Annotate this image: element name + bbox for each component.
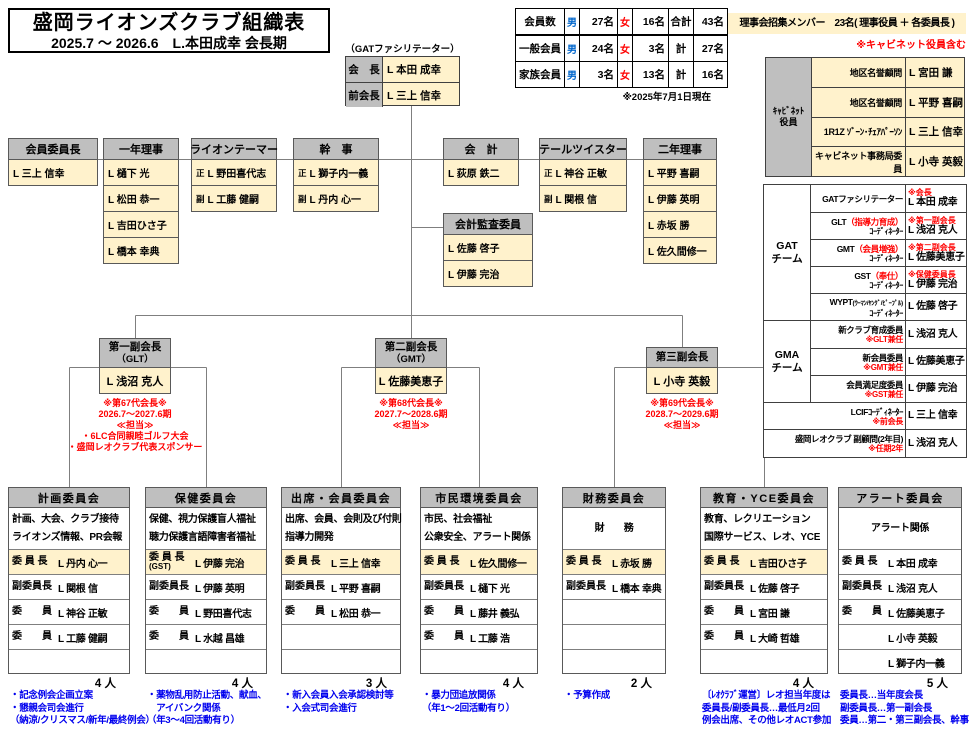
committee-count: 4 人 [145,675,267,691]
leo-role: 盛岡レオクラブ 副顧問(2年目) [795,434,903,444]
male-label: 男 [565,35,580,62]
officer-column-secretary: 幹 事 正L 獅子内一義 副L 丹内 心一 [293,138,379,212]
gat-role-line2: ｺｰﾃﾞｨﾈｰﾀｰ [869,309,903,318]
officer-column-title: テールツイスター [539,138,627,160]
cabinet-name: L 小寺 英毅 [906,147,964,176]
committee-notes: ・記念例会企画立案 ・懇親会司会進行 （納涼/クリスマス/新年/最終例会） [10,690,155,728]
male-count: 3名 [580,62,618,88]
president-label: 会 長 [346,57,383,82]
gat-team-section: GAT チーム GATファシリテーター ※会長 L 本田 成幸 GLT [764,185,966,321]
committee-title: アラート委員会 [839,488,961,508]
gma-name: L 佐藤美恵子 [908,356,966,368]
committee-desc: 教育、レクリエーション 国際サービス、レオ、YCE [701,508,827,550]
total-label: 合計 [669,9,694,36]
gat-name-cell: ※会長 L 本田 成幸 [906,185,966,212]
gat-role-cell: GMT（会員増強） ｺｰﾃﾞｨﾈｰﾀｰ [811,240,906,266]
committee-row [563,650,665,675]
vp-note-line: ※第69代会長※ [597,398,767,409]
total-count: 43名 [694,9,728,36]
officer-row: L 吉田ひさ子 [103,212,179,238]
cabinet-row: 1R1Z ｿﾞｰﾝ･ﾁｪｱﾊﾟｰｿﾝ L 三上 信幸 [812,117,964,147]
female-count: 13名 [633,62,669,88]
third-vp-header: 第三副会長 [646,347,718,368]
officer-row: L 松田 恭一 [103,186,179,212]
president-name: L 本田 成幸 [383,57,459,82]
cabinet-role: キャビネット事務局委員 [812,147,906,176]
vp-note-line: 2027.7～2028.6期 [326,409,496,420]
total-label: 計 [669,35,694,62]
committee-count: 5 人 [838,675,962,691]
gma-name: L 浅沼 克人 [908,329,966,341]
gat-name-cell: ※第一副会長 L 浅沼 克人 [906,213,966,239]
officer-row: L 三上 信幸 [8,160,98,186]
officer-name: L 平野 喜嗣 [648,165,699,180]
female-label: 女 [618,62,633,88]
officer-column-title: 幹 事 [293,138,379,160]
vp-note-line: 2026.7～2027.6期 [50,409,220,420]
vp-note-line: ≪担当≫ [597,420,767,431]
officer-name: L 伊藤 完治 [448,266,499,281]
officer-rank: 正 [544,167,553,179]
committee-row [563,600,665,625]
officer-name: L 樋下 光 [108,165,149,180]
gma-row: 新クラブ育成委員 ※GLT兼任 L 浅沼 克人 [811,321,966,348]
cabinet-label-line1: ｷｬﾋﾞﾈｯﾄ [773,106,805,117]
officer-name: L 荻原 鉄二 [448,165,499,180]
vp-name: L 小寺 英毅 [646,368,718,394]
committee-notes: ・薬物乱用防止活動、献血、 アイバンク関係 （年3～4回活動有り） [147,690,267,728]
vp-title: 第二副会長 [376,340,446,354]
gat-role-line2: ｺｰﾃﾞｨﾈｰﾀｰ [869,227,903,236]
officer-row: 副L 丹内 心一 [293,186,379,212]
second-vp-box: 第二副会長 （GMT） L 佐藤美恵子 [375,338,447,394]
lcif-row: LCIFｺｰﾃﾞｨﾈｰﾀｰ ※前会長 L 三上 信幸 [764,403,966,430]
gat-role-line2: ｺｰﾃﾞｨﾈｰﾀｰ [869,254,903,263]
committee-row: 委 員L 水越 昌雄 [146,625,266,650]
cabinet-row: キャビネット事務局委員 L 小寺 英毅 [812,146,964,176]
regular-members-row: 一般会員 男 24名 女 3名 計 27名 [516,35,728,62]
committee-chair-row: 委 員 長L 丹内 心一 [9,550,129,575]
officer-row: L 橋本 幸典 [103,238,179,264]
cabinet-rows: 地区名誉顧問 L 宮田 謙 地区名誉顧問 L 平野 喜嗣 1R1Z ｿﾞｰﾝ･ﾁ… [812,58,964,176]
first-vp-box: 第一副会長 （GLT） L 浅沼 克人 [99,338,171,394]
family-members-label: 家族会員 [516,62,565,88]
cabinet-name: L 宮田 謙 [906,58,964,87]
committee-row: 委 員L 宮田 謙 [701,600,827,625]
committee-desc: 保健、視力保護盲人福祉 聴力保護言語障害者福祉 [146,508,266,550]
officer-column-treasurer: 会 計 L 荻原 鉄二 [443,138,519,186]
gma-team-section: GMA チーム 新クラブ育成委員 ※GLT兼任 L 浅沼 克人 新会員委員 ※G… [764,321,966,403]
committee-desc: 財 務 [563,508,665,550]
first-vp-header: 第一副会長 （GLT） [99,338,171,368]
committee-planning: 計画委員会 計画、大会、クラブ接待 ライオンズ情報、PR会報 委 員 長L 丹内… [8,487,130,674]
officer-name: L 赤坂 勝 [648,217,689,232]
first-vp-notes: ※第67代会長※ 2026.7～2027.6期 ≪担当≫ ・6LC合同親睦ゴルフ… [50,398,220,453]
president-box: 会 長 L 本田 成幸 前会長 L 三上 信幸 [345,56,460,106]
gma-name-cell: L 佐藤美恵子 [906,349,966,375]
officer-row: 正L 神谷 正敏 [539,160,627,186]
committee-count: 4 人 [420,675,538,691]
gma-role-cell: 会員満足度委員 ※GST兼任 [811,376,906,402]
gat-role: GST（奉仕） [854,271,903,281]
member-count-label: 会員数 [516,9,565,36]
officer-name: L 吉田ひさ子 [108,217,167,232]
officer-row: L 荻原 鉄二 [443,160,519,186]
gma-name-cell: L 浅沼 克人 [906,321,966,348]
leo-name: L 浅沼 克人 [908,438,966,450]
past-president-name: L 三上 信幸 [383,83,459,107]
gma-row: 新会員委員 ※GMT兼任 L 佐藤美恵子 [811,348,966,375]
officer-column-tail-twister: テールツイスター 正L 神谷 正敏 副L 関根 信 [539,138,627,212]
committee-row: 副委員長L 伊藤 英明 [146,575,266,600]
officer-name: L 松田 恭一 [108,191,159,206]
second-vp-notes: ※第68代会長※ 2027.7～2028.6期 ≪担当≫ [326,398,496,431]
vp-subtitle: （GMT） [376,354,446,366]
second-vp-header: 第二副会長 （GMT） [375,338,447,368]
lcif-name: L 三上 信幸 [908,410,966,422]
gat-name: L 佐藤美恵子 [908,252,966,264]
gma-role-cell: 新クラブ育成委員 ※GLT兼任 [811,321,906,348]
gat-role-cell: WYPT(ｳｰﾏﾝ/ﾔﾝｸﾞ/ﾋﾟｰﾌﾟﾙ) ｺｰﾃﾞｨﾈｰﾀｰ [811,294,906,320]
gat-role: GMT（会員増強） [837,244,903,254]
board-members-banner: 理事会招集メンバー 23名( 理事役員 ＋ 各委員長 ) [728,13,966,34]
cabinet-label-line2: 役員 [779,117,797,128]
committee-finance: 財務委員会 財 務 委 員 長L 赤坂 勝 副委員長L 橋本 幸典 [562,487,666,674]
page-title: 盛岡ライオンズクラブ組織表 [10,11,328,35]
gat-row: GMT（会員増強） ｺｰﾃﾞｨﾈｰﾀｰ ※第二副会長 L 佐藤美恵子 [811,239,966,266]
vp-note-line: ≪担当≫ [50,420,220,431]
officer-name: L 橋本 幸典 [108,243,159,258]
vp-subtitle: （GLT） [100,354,170,366]
committee-title: 教育・YCE委員会 [701,488,827,508]
gat-role: WYPT(ｳｰﾏﾝ/ﾔﾝｸﾞ/ﾋﾟｰﾌﾟﾙ) [830,297,903,309]
committee-row: 副委員長L 佐藤 啓子 [701,575,827,600]
committee-title: 出席・会員委員会 [282,488,400,508]
cabinet-role: 1R1Z ｿﾞｰﾝ･ﾁｪｱﾊﾟｰｿﾝ [812,118,906,147]
officer-column-title: 一年理事 [103,138,179,160]
committee-chair-row: 委 員 長L 本田 成幸 [839,550,961,575]
total-label: 計 [669,62,694,88]
committee-row [282,650,400,675]
committee-notes: 〔ﾚｵｸﾗﾌﾞ運営〕レオ担当年度は 委員長/副委員長…最低月2回 例会出席、その… [702,690,831,728]
leo-red-note: ※任期2年 [868,444,903,453]
officer-column-title: ライオンテーマー [191,138,277,160]
board-members-note: ※キャビネット役員含む [728,36,966,51]
gat-role-line2: ｺｰﾃﾞｨﾈｰﾀｰ [869,281,903,290]
vp-note-line: 2028.7～2029.6期 [597,409,767,420]
lcif-role: LCIFｺｰﾃﾞｨﾈｰﾀｰ [851,407,903,417]
vp-title: 第三副会長 [647,348,717,367]
male-count: 24名 [580,35,618,62]
gma-team-label: GMA チーム [764,321,811,402]
committee-title: 計画委員会 [9,488,129,508]
vp-name: L 佐藤美恵子 [375,368,447,394]
gma-rows: 新クラブ育成委員 ※GLT兼任 L 浅沼 克人 新会員委員 ※GMT兼任 L 佐… [811,321,966,402]
committee-row: 委 員L 藤井 義弘 [421,600,537,625]
vp-title: 第一副会長 [100,340,170,354]
audit-title: 会計監査委員 [443,213,533,235]
gat-name-cell: L 佐藤 啓子 [906,294,966,320]
committee-notes: ・予算作成 [564,690,610,703]
audit-committee-box: 会計監査委員 L 佐藤 啓子 L 伊藤 完治 [443,213,533,287]
president-row: 会 長 L 本田 成幸 [346,57,459,82]
committee-chair-row: 委 員 長(GST)L 伊藤 完治 [146,550,266,575]
committee-row [563,625,665,650]
committee-row: 副委員長L 平野 喜嗣 [282,575,400,600]
officer-row: L 伊藤 完治 [443,261,533,287]
committee-desc: 市民、社会福祉 公衆安全、アラート関係 [421,508,537,550]
third-vp-notes: ※第69代会長※ 2028.7～2029.6期 ≪担当≫ [597,398,767,431]
gat-red-note: ※第二副会長 [908,243,966,252]
leo-role-cell: 盛岡レオクラブ 副顧問(2年目) ※任期2年 [764,430,906,457]
officer-row: L 赤坂 勝 [643,212,717,238]
gma-red-note: ※GLT兼任 [866,335,903,344]
committee-row: L 小寺 英毅 [839,625,961,650]
gat-gma-table: GAT チーム GATファシリテーター ※会長 L 本田 成幸 GLT [763,184,967,458]
vp-note-line: ・盛岡レオクラブ代表スポンサー [50,442,220,453]
committee-count: 3 人 [281,675,401,691]
committee-row: 委 員L 佐藤美恵子 [839,600,961,625]
org-chart-canvas: 盛岡ライオンズクラブ組織表 2025.7 ～ 2026.6 L.本田成幸 会長期… [0,0,969,729]
committee-desc: 計画、大会、クラブ接待 ライオンズ情報、PR会報 [9,508,129,550]
officer-column-membership-chair: 会員委員長 L 三上 信幸 [8,138,98,186]
total-count: 27名 [694,35,728,62]
gat-role-cell: GATファシリテーター [811,185,906,212]
committee-chair-row: 委 員 長L 佐久間修一 [421,550,537,575]
total-count: 16名 [694,62,728,88]
president-gat-facilitator-note: （GATファシリテーター） [330,41,475,55]
committee-row: 副委員長L 樋下 光 [421,575,537,600]
committee-education-yce: 教育・YCE委員会 教育、レクリエーション 国際サービス、レオ、YCE 委 員 … [700,487,828,674]
gma-label-line1: GMA [775,349,800,362]
as-of-date-note: ※2025年7月1日現在 [515,89,711,103]
committee-desc: アラート関係 [839,508,961,550]
committee-row: 委 員L 松田 恭一 [282,600,400,625]
officer-row: 正L 獅子内一義 [293,160,379,186]
committee-row [701,650,827,675]
officer-name: L 三上 信幸 [13,165,64,180]
gma-role: 新クラブ育成委員 [838,325,903,335]
committee-count: 4 人 [8,675,130,691]
cabinet-officers-table: ｷｬﾋﾞﾈｯﾄ 役員 地区名誉顧問 L 宮田 謙 地区名誉顧問 L 平野 喜嗣 … [765,57,965,177]
committee-chair-row: 委 員 長L 赤坂 勝 [563,550,665,575]
committee-count: 2 人 [562,675,666,691]
officer-row: 副L 関根 信 [539,186,627,212]
officer-name: L 野田喜代志 [208,165,267,180]
gat-red-note: ※第一副会長 [908,216,966,225]
cabinet-role: 地区名誉顧問 [812,58,906,87]
committee-row: 委 員L 工藤 健嗣 [9,625,129,650]
officer-column-lion-tamer: ライオンテーマー 正L 野田喜代志 副L 工藤 健嗣 [191,138,277,212]
gat-label-line1: GAT [776,240,797,253]
committee-row: 委 員L 神谷 正敏 [9,600,129,625]
committee-health: 保健委員会 保健、視力保護盲人福祉 聴力保護言語障害者福祉 委 員 長(GST)… [145,487,267,674]
gat-role-cell: GLT（指導力育成） ｺｰﾃﾞｨﾈｰﾀｰ [811,213,906,239]
member-count-header-row: 会員数 男 27名 女 16名 合計 43名 [516,9,728,36]
officer-row: L 伊藤 英明 [643,186,717,212]
gat-rows: GATファシリテーター ※会長 L 本田 成幸 GLT（指導力育成） ｺｰﾃﾞｨ… [811,185,966,320]
cabinet-name: L 三上 信幸 [906,118,964,147]
male-label: 男 [565,62,580,88]
officer-column-first-year-directors: 一年理事 L 樋下 光 L 松田 恭一 L 吉田ひさ子 L 橋本 幸典 [103,138,179,264]
past-president-row: 前会長 L 三上 信幸 [346,82,459,107]
cabinet-officers-label: ｷｬﾋﾞﾈｯﾄ 役員 [766,58,812,176]
committee-title: 保健委員会 [146,488,266,508]
officer-column-title: 二年理事 [643,138,717,160]
committee-count: 4 人 [700,675,828,691]
gat-row: GST（奉仕） ｺｰﾃﾞｨﾈｰﾀｰ ※保健委員長 L 伊藤 完治 [811,266,966,293]
regular-members-label: 一般会員 [516,35,565,62]
gat-name: L 伊藤 完治 [908,279,966,291]
gma-role-cell: 新会員委員 ※GMT兼任 [811,349,906,375]
officer-name: L 関根 信 [556,191,597,206]
committee-row [282,625,400,650]
officer-rank: 副 [298,193,307,205]
gat-name: L 浅沼 克人 [908,225,966,237]
lcif-name-cell: L 三上 信幸 [906,403,966,429]
committee-row [421,650,537,675]
officer-row: L 佐藤 啓子 [443,235,533,261]
gat-name-cell: ※保健委員長 L 伊藤 完治 [906,267,966,293]
gat-role-cell: GST（奉仕） ｺｰﾃﾞｨﾈｰﾀｰ [811,267,906,293]
gat-name: L 本田 成幸 [908,197,966,209]
female-count: 3名 [633,35,669,62]
committee-title: 市民環境委員会 [421,488,537,508]
gma-name: L 伊藤 完治 [908,383,966,395]
family-members-row: 家族会員 男 3名 女 13名 計 16名 [516,62,728,88]
title-box: 盛岡ライオンズクラブ組織表 2025.7 ～ 2026.6 L.本田成幸 会長期 [8,8,330,53]
gat-name: L 佐藤 啓子 [908,301,966,313]
gma-red-note: ※GMT兼任 [863,363,903,372]
committee-notes: ・新入会員入会承認検討等 ・入会式司会進行 [283,690,393,715]
gma-role: 会員満足度委員 [846,380,903,390]
past-president-label: 前会長 [346,83,383,107]
gat-row: GLT（指導力育成） ｺｰﾃﾞｨﾈｰﾀｰ ※第一副会長 L 浅沼 克人 [811,212,966,239]
officer-name: L 工藤 健嗣 [208,191,259,206]
officer-name: L 伊藤 英明 [648,191,699,206]
officer-row: L 佐久間修一 [643,238,717,264]
committee-row: 委 員L 工藤 浩 [421,625,537,650]
gma-label-line2: チーム [771,362,802,375]
committee-alert: アラート委員会 アラート関係 委 員 長L 本田 成幸 副委員長L 浅沼 克人 … [838,487,962,674]
cabinet-role: 地区名誉顧問 [812,88,906,117]
committee-row: 副委員長L 浅沼 克人 [839,575,961,600]
gat-row: WYPT(ｳｰﾏﾝ/ﾔﾝｸﾞ/ﾋﾟｰﾌﾟﾙ) ｺｰﾃﾞｨﾈｰﾀｰ L 佐藤 啓子 [811,293,966,320]
committee-row: L 獅子内一義 [839,650,961,675]
gat-team-label: GAT チーム [764,185,811,320]
committee-row: 委 員L 野田喜代志 [146,600,266,625]
officer-row: L 平野 喜嗣 [643,160,717,186]
cabinet-row: 地区名誉顧問 L 宮田 謙 [812,58,964,87]
committee-chair-row: 委 員 長L 吉田ひさ子 [701,550,827,575]
male-label: 男 [565,9,580,36]
vp-note-line: ≪担当≫ [326,420,496,431]
committee-notes: 委員長…当年度会長 副委員長…第一副会長 委員…第二・第三副会長、幹事 [840,690,969,728]
gat-role: GATファシリテーター [822,194,903,204]
female-count: 16名 [633,9,669,36]
committee-row: 副委員長L 橋本 幸典 [563,575,665,600]
officer-rank: 正 [196,167,205,179]
committee-attendance-membership: 出席・会員委員会 出席、会員、会則及び付則 指導力開発 委 員 長L 三上 信幸… [281,487,401,674]
officer-rank: 正 [298,167,307,179]
committee-row [146,650,266,675]
cabinet-name: L 平野 喜嗣 [906,88,964,117]
lcif-role-cell: LCIFｺｰﾃﾞｨﾈｰﾀｰ ※前会長 [764,403,906,429]
gat-role: GLT（指導力育成） [831,217,903,227]
vp-note-line: ・6LC合同親睦ゴルフ大会 [50,431,220,442]
gat-name-cell: ※第二副会長 L 佐藤美恵子 [906,240,966,266]
officer-column-title: 会 計 [443,138,519,160]
vp-name: L 浅沼 克人 [99,368,171,394]
committee-row: 委 員L 大崎 哲雄 [701,625,827,650]
committee-row: 副委員長L 関根 信 [9,575,129,600]
officer-row: 副L 工藤 健嗣 [191,186,277,212]
officer-column-second-year-directors: 二年理事 L 平野 喜嗣 L 伊藤 英明 L 赤坂 勝 L 佐久間修一 [643,138,717,264]
male-count: 27名 [580,9,618,36]
officer-rank: 副 [196,193,205,205]
vp-note-line: ※第67代会長※ [50,398,220,409]
gat-red-note: ※会長 [908,188,966,197]
committee-desc: 出席、会員、会則及び付則 指導力開発 [282,508,400,550]
gat-row: GATファシリテーター ※会長 L 本田 成幸 [811,185,966,212]
member-count-table: 会員数 男 27名 女 16名 合計 43名 一般会員 男 24名 女 3名 計… [515,8,728,88]
gma-row: 会員満足度委員 ※GST兼任 L 伊藤 完治 [811,375,966,402]
officer-name: L 獅子内一義 [310,165,369,180]
officer-column-title: 会員委員長 [8,138,98,160]
third-vp-box: 第三副会長 L 小寺 英毅 [646,338,718,394]
page-subtitle: 2025.7 ～ 2026.6 L.本田成幸 会長期 [10,35,328,52]
lcif-red-note: ※前会長 [872,417,903,426]
officer-name: L 丹内 心一 [310,191,361,206]
female-label: 女 [618,35,633,62]
leo-club-row: 盛岡レオクラブ 副顧問(2年目) ※任期2年 L 浅沼 克人 [764,430,966,457]
officer-name: L 佐藤 啓子 [448,240,499,255]
committee-notes: ・暴力団追放関係 （年1～2回活動有り） [422,690,515,715]
leo-name-cell: L 浅沼 克人 [906,430,966,457]
committee-civic-environment: 市民環境委員会 市民、社会福祉 公衆安全、アラート関係 委 員 長L 佐久間修一… [420,487,538,674]
officer-name: L 神谷 正敏 [556,165,607,180]
gat-red-note: ※保健委員長 [908,270,966,279]
officer-row: 正L 野田喜代志 [191,160,277,186]
officer-row: L 樋下 光 [103,160,179,186]
committee-chair-row: 委 員 長L 三上 信幸 [282,550,400,575]
gma-role: 新会員委員 [862,353,903,363]
gma-red-note: ※GST兼任 [865,390,903,399]
gma-name-cell: L 伊藤 完治 [906,376,966,402]
committee-title: 財務委員会 [563,488,665,508]
female-label: 女 [618,9,633,36]
cabinet-row: 地区名誉顧問 L 平野 喜嗣 [812,87,964,117]
gat-label-line2: チーム [771,253,802,266]
officer-name: L 佐久間修一 [648,243,707,258]
vp-note-line: ※第68代会長※ [326,398,496,409]
officer-rank: 副 [544,193,553,205]
committee-row [9,650,129,675]
